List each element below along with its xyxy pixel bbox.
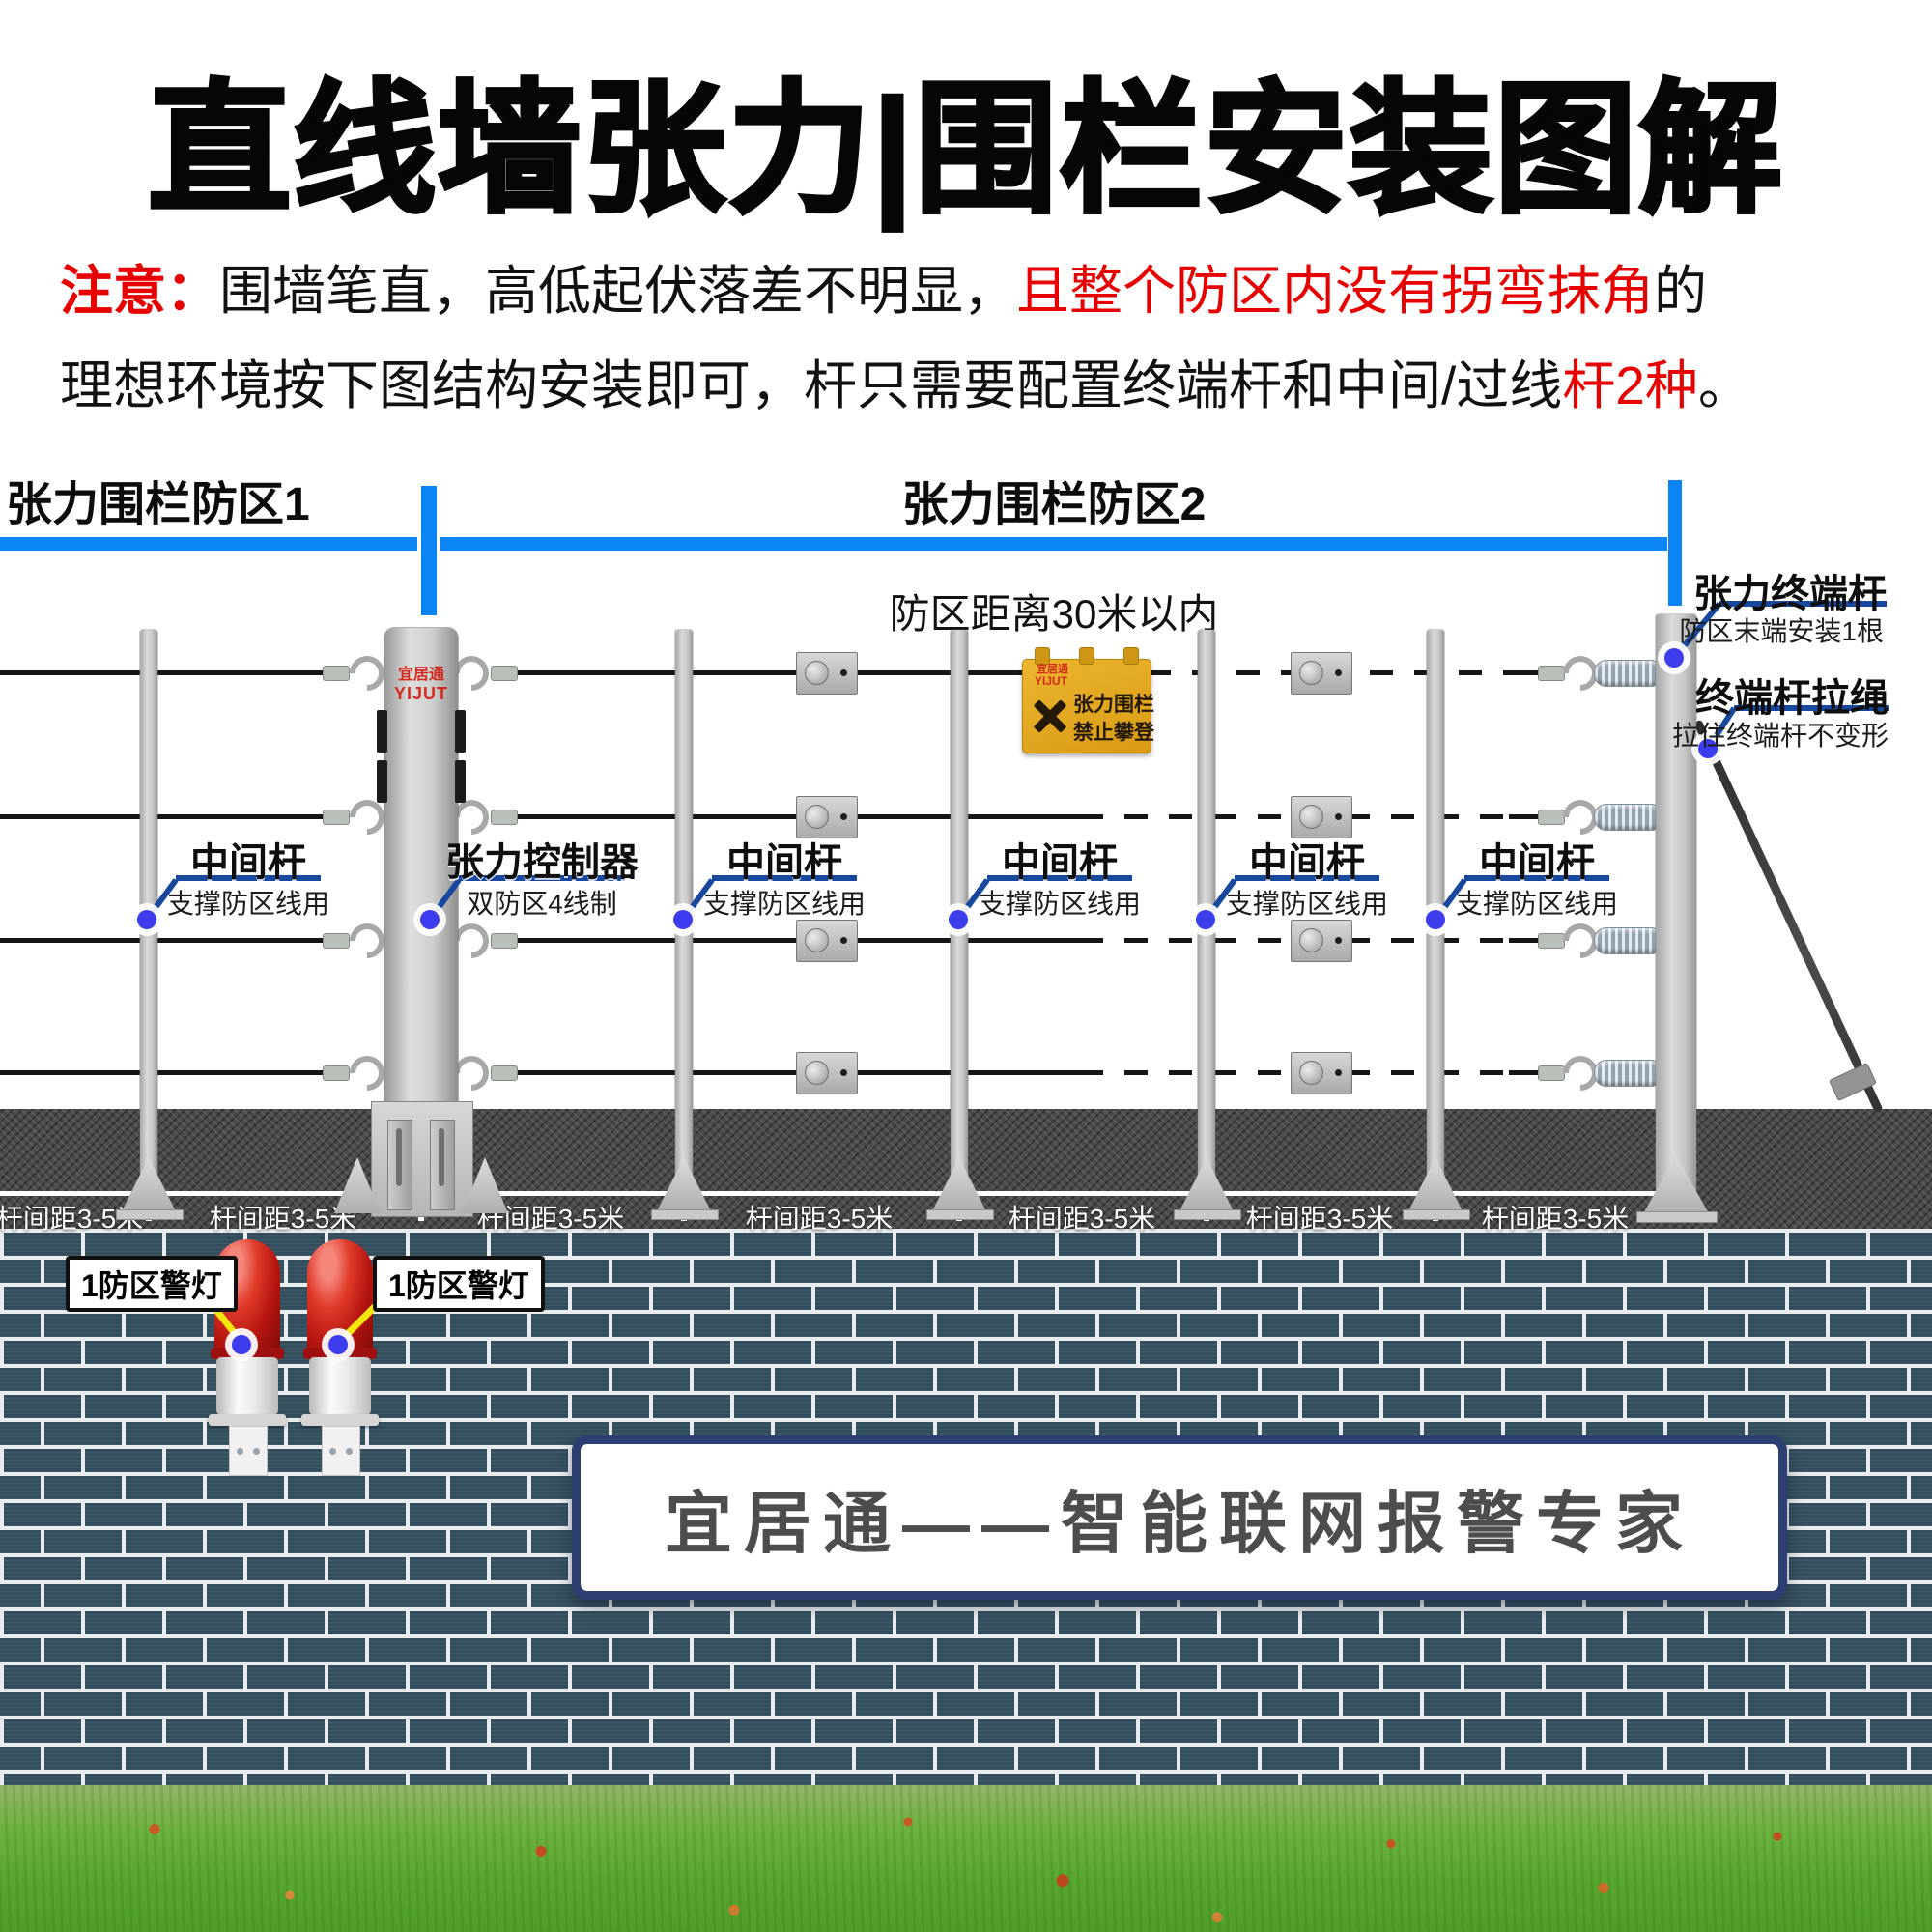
alarm-connector-dot [328,1335,348,1354]
wire-detector-box [1291,1052,1352,1094]
callout-title: 中间杆 [1479,831,1595,887]
brick-row [0,1638,1932,1665]
alarm-base [309,1357,371,1415]
brick-row [0,1692,1932,1719]
wire-ferrule-icon [323,933,350,949]
controller-clamp-icon [455,760,466,803]
controller-logo-cn: 宜居通 [384,667,458,684]
callout-connector-dot [137,910,156,929]
poster-canvas: 直线墙张力|围栏安装图解 注意：围墙笔直，高低起伏落差不明显，且整个防区内没有拐… [0,0,1932,1932]
brick-row [0,1719,1932,1747]
wire-detector-box [796,920,858,962]
rope-sublabel: 拉住终端杆不变形 [1672,715,1889,753]
brick-row [0,1747,1932,1774]
callout-title: 中间杆 [1249,831,1365,887]
tension-spring-icon [1594,660,1663,687]
brand-banner: 宜居通——智能联网报警专家 [572,1435,1787,1600]
wire-ferrule-icon [491,810,518,825]
fence-wire [516,670,1026,675]
brick-row [0,1260,1932,1287]
alarm-flange [301,1414,379,1426]
wire-ferrule-icon [1538,810,1565,825]
warning-sign: 宜居通 YIJUT 张力围栏 禁止攀登 [1022,659,1151,753]
controller-clamp-icon [455,710,466,753]
sign-text: 张力围栏 禁止攀登 [1073,691,1154,747]
brick-row [0,1314,1932,1341]
wire-ferrule-icon [491,666,518,681]
alarm-label-2: 1防区警灯 [373,1256,545,1312]
callout-subtitle: 支撑防区线用 [703,883,866,922]
wire-ferrule-icon [1538,666,1565,681]
alarm-light [301,1239,379,1481]
alarm-bracket [229,1426,268,1476]
terminal-connector-dot [1664,648,1684,668]
pole-base-plate [116,1209,184,1220]
callout-connector-dot [673,910,693,929]
tension-spring-icon [1594,804,1663,831]
wire-ferrule-icon [1538,933,1565,949]
wire-detector-box [1291,920,1352,962]
wire-detector-box [796,652,858,695]
brick-row [0,1287,1932,1314]
callout-connector-dot [420,910,440,929]
pole-base-plate [1403,1209,1470,1220]
wire-ferrule-icon [491,1065,518,1081]
tension-spring-icon [1594,1060,1663,1087]
terminal-pole-plate [1636,1211,1718,1223]
controller-base-rail [387,1120,412,1210]
wire-ferrule-icon [491,933,518,949]
fence-wire [1509,814,1542,819]
sign-logo-en: YIJUT [1035,675,1067,687]
terminal-pole-sublabel: 防区末端安装1根 [1679,611,1884,649]
pole-spacing-label: 杆间距3-5米 [1246,1198,1393,1236]
controller-base [371,1101,473,1217]
callout-subtitle: 支撑防区线用 [167,883,329,922]
pole-base-plate [651,1209,719,1220]
controller-clamp-icon [377,710,387,753]
alarm-connector-dot [232,1335,251,1354]
alarm-label-1: 1防区警灯 [66,1256,238,1312]
fence-wire [0,938,325,943]
wire-ferrule-icon [323,810,350,825]
brick-row [0,1341,1932,1368]
callout-subtitle: 支撑防区线用 [979,883,1141,922]
pole-spacing-label: 杆间距3-5米 [1009,1198,1155,1236]
wire-detector-box [796,1052,858,1094]
fence-wire [1509,938,1542,943]
alarm-base [216,1357,278,1415]
sign-line-2: 禁止攀登 [1073,722,1154,744]
tension-spring-icon [1594,927,1663,954]
callout-title: 中间杆 [1002,831,1118,887]
fence-wire [0,814,325,819]
pole-base-plate [1174,1209,1241,1220]
brick-row [0,1395,1932,1422]
callout-connector-dot [1426,910,1445,929]
callout-connector-dot [949,910,968,929]
wire-detector-box [1291,652,1352,695]
sign-hanger-icon [1035,647,1050,665]
grass [0,1785,1932,1932]
callout-subtitle: 支撑防区线用 [1456,883,1618,922]
sign-hanger-icon [1123,647,1139,665]
alarm-flange [209,1414,286,1426]
pole-spacing-label: 杆间距3-5米 [1482,1198,1629,1236]
sign-hanger-icon [1079,647,1094,665]
brick-row [0,1368,1932,1395]
fence-wire [1509,670,1542,675]
fence-wire [0,670,325,675]
controller-logo-en: YIJUT [384,684,458,703]
controller-base-rail [430,1120,455,1210]
pole-spacing-label: 杆间距3-5米 [746,1198,893,1236]
callout-subtitle: 双防区4线制 [467,883,617,922]
sign-line-1: 张力围栏 [1073,694,1154,716]
pole-base-plate [926,1209,994,1220]
callout-connector-dot [1196,910,1215,929]
callout-title: 中间杆 [726,831,842,887]
brick-row [0,1611,1932,1638]
brick-row [0,1233,1932,1260]
no-climbing-icon [1031,696,1069,735]
callout-subtitle: 支撑防区线用 [1226,883,1388,922]
fence-wire [0,1070,325,1075]
terminal-pole [1656,614,1696,1215]
brick-row [0,1665,1932,1692]
wire-ferrule-icon [1538,1065,1565,1081]
callout-title: 中间杆 [190,831,306,887]
pole-spacing-label: 杆间距3-5米 [210,1198,356,1236]
alarm-bracket [322,1426,360,1476]
callout-title: 张力控制器 [445,831,639,887]
wire-ferrule-icon [323,1065,350,1081]
controller-clamp-icon [377,760,387,803]
wire-ferrule-icon [323,666,350,681]
fence-wire [1509,1070,1542,1075]
